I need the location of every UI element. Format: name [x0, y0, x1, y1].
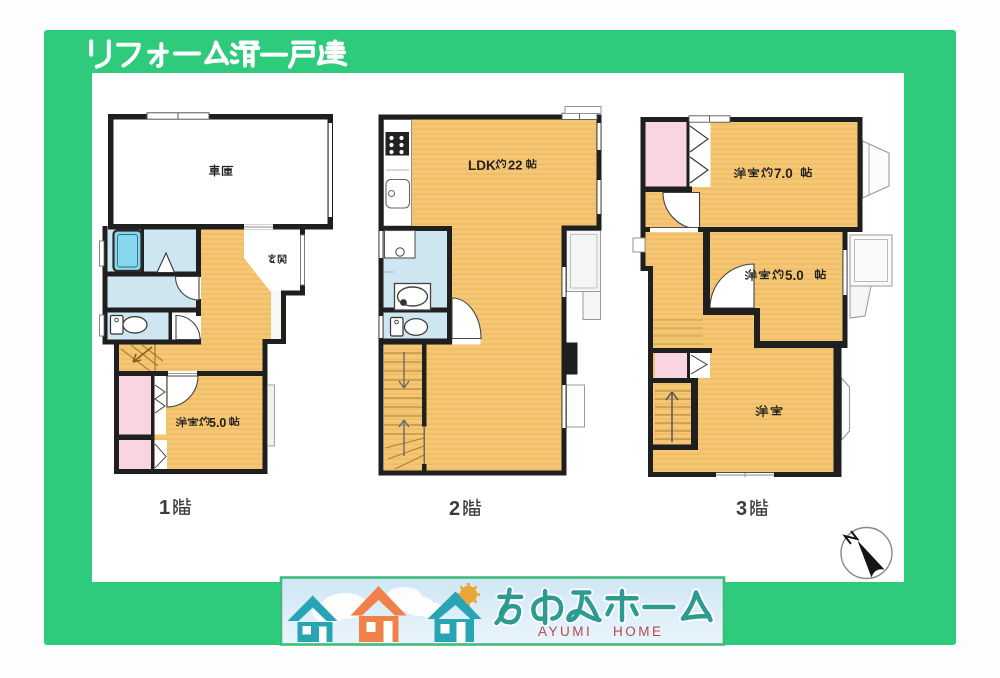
svg-text:2: 2: [449, 498, 460, 520]
svg-text:1: 1: [159, 497, 170, 519]
svg-text:LDK: LDK: [468, 158, 496, 173]
svg-text:22: 22: [508, 158, 522, 173]
svg-text:5.0: 5.0: [785, 268, 804, 283]
svg-text:5.0: 5.0: [209, 416, 226, 430]
svg-text:HOME: HOME: [613, 624, 664, 639]
svg-text:7.0: 7.0: [774, 166, 793, 181]
svg-text:3: 3: [736, 498, 747, 520]
svg-text:AYUMI: AYUMI: [538, 624, 592, 639]
